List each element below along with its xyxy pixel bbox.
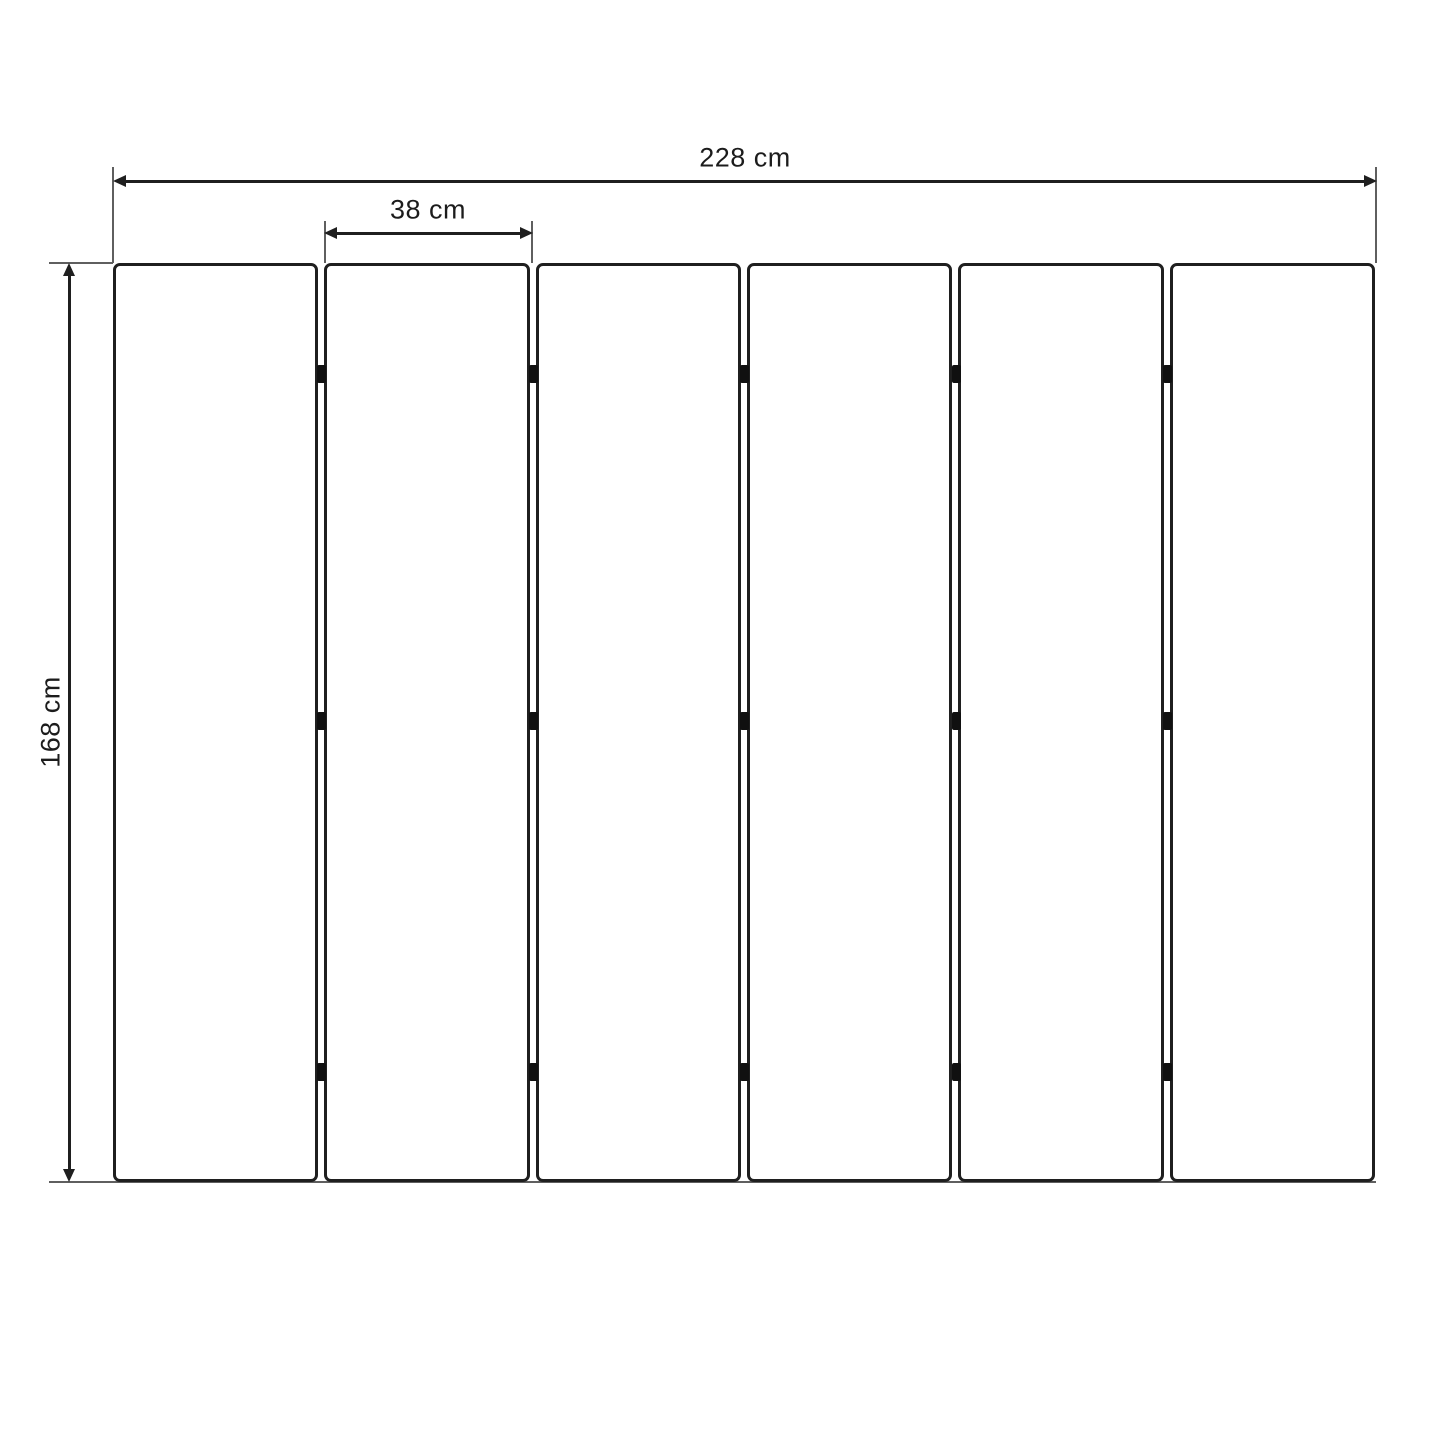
arrowhead-right-icon xyxy=(520,227,533,239)
folding-screen xyxy=(113,263,1375,1182)
height-label: 168 cm xyxy=(36,676,67,768)
panel-width-label: 38 cm xyxy=(390,195,466,226)
panel-6 xyxy=(1170,263,1375,1182)
panel-4 xyxy=(747,263,952,1182)
dimension-shaft xyxy=(124,180,1366,183)
extension-line-top xyxy=(49,262,113,264)
arrowhead-down-icon xyxy=(63,1169,75,1182)
arrowhead-right-icon xyxy=(1364,175,1377,187)
panel-5 xyxy=(958,263,1163,1182)
dimension-shaft xyxy=(68,274,71,1171)
panel-width-dimension-line xyxy=(324,227,533,240)
panel-1 xyxy=(113,263,318,1182)
total-width-dimension-line xyxy=(113,175,1377,188)
panel-3 xyxy=(536,263,741,1182)
dimension-shaft xyxy=(335,232,522,235)
panel-2 xyxy=(324,263,529,1182)
total-width-label: 228 cm xyxy=(699,143,791,174)
dimension-diagram: 228 cm 38 cm 168 cm xyxy=(0,0,1445,1445)
